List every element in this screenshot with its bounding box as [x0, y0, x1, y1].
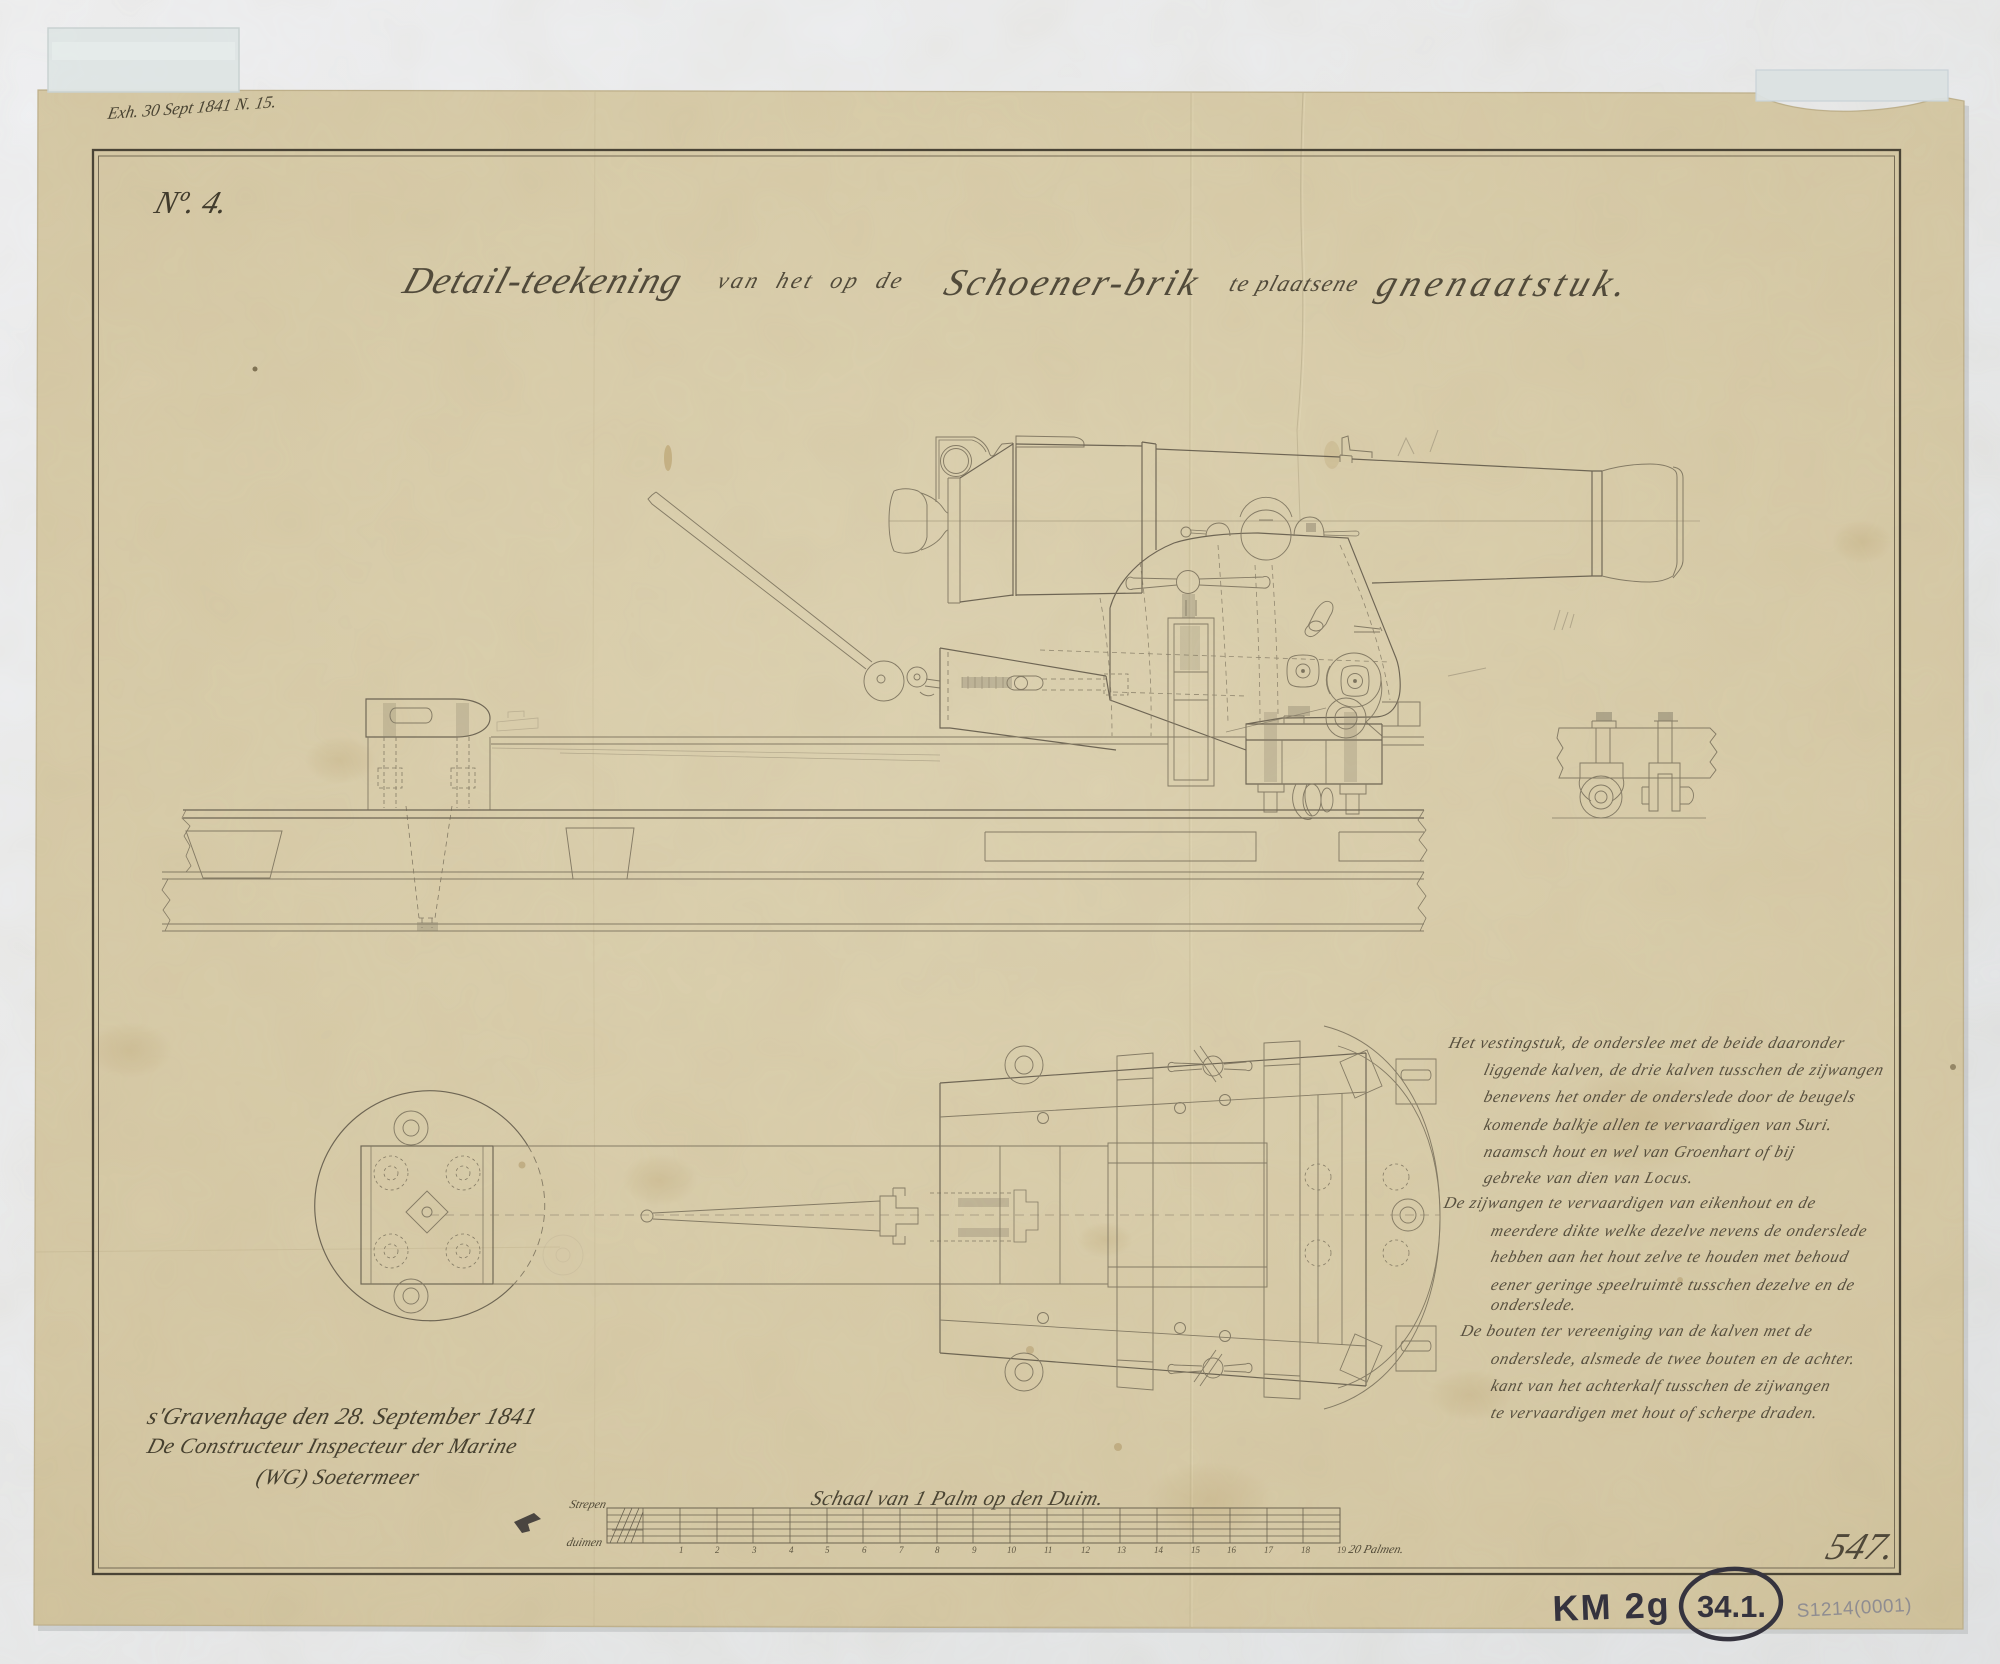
svg-text:34.1.: 34.1.	[1697, 1589, 1766, 1624]
svg-text:te vervaardigen met hout of sc: te vervaardigen met hout of scherpe drad…	[1489, 1403, 1820, 1422]
svg-text:16: 16	[1227, 1545, 1237, 1555]
svg-text:duimen: duimen	[565, 1535, 604, 1549]
svg-text:7: 7	[899, 1545, 904, 1555]
svg-text:9: 9	[972, 1545, 977, 1555]
svg-text:s'Gravenhage den 28. September: s'Gravenhage den 28. September 1841	[144, 1403, 540, 1429]
svg-text:10: 10	[1007, 1545, 1017, 1555]
svg-text:12: 12	[1081, 1545, 1091, 1555]
svg-text:Strepen: Strepen	[568, 1497, 608, 1511]
svg-text:Detail-teekening: Detail-teekening	[397, 260, 689, 302]
svg-text:1: 1	[679, 1545, 684, 1555]
svg-text:van het op de: van het op de	[714, 269, 908, 294]
svg-text:onderslede.: onderslede.	[1489, 1295, 1579, 1314]
svg-text:8: 8	[935, 1545, 940, 1555]
svg-text:11: 11	[1044, 1545, 1052, 1555]
svg-text:benevens het onder de ondersle: benevens het onder de onderslede door de…	[1482, 1087, 1858, 1106]
svg-text:naamsch hout en wel van Groenh: naamsch hout en wel van Groenhart of bij	[1482, 1142, 1797, 1161]
svg-text:liggende kalven, de drie kalve: liggende kalven, de drie kalven tusschen…	[1482, 1060, 1886, 1079]
svg-text:14: 14	[1154, 1545, 1164, 1555]
svg-text:6: 6	[862, 1545, 867, 1555]
svg-text:20 Palmen.: 20 Palmen.	[1347, 1542, 1405, 1556]
svg-text:De zijwangen te vervaardigen v: De zijwangen te vervaardigen van eikenho…	[1441, 1193, 1818, 1212]
svg-text:Schoener-brik: Schoener-brik	[939, 262, 1206, 304]
svg-text:4: 4	[789, 1545, 794, 1555]
svg-text:Nº. 4.: Nº. 4.	[150, 186, 232, 221]
svg-text:KM 2g: KM 2g	[1552, 1584, 1671, 1629]
svg-text:De bouten ter vereeniging van: De bouten ter vereeniging van de kalven …	[1458, 1321, 1815, 1340]
svg-text:onderslede, alsmede de twee bo: onderslede, alsmede de twee bouten en de…	[1489, 1349, 1858, 1368]
svg-text:Schaal van 1 Palm op den Duim.: Schaal van 1 Palm op den Duim.	[809, 1486, 1107, 1510]
svg-text:Het vestingstuk, de onderslee: Het vestingstuk, de onderslee met de bei…	[1446, 1033, 1847, 1052]
svg-text:547.: 547.	[1821, 1526, 1901, 1568]
svg-text:19: 19	[1337, 1545, 1347, 1555]
svg-text:17: 17	[1264, 1545, 1274, 1555]
svg-text:2: 2	[715, 1545, 720, 1555]
svg-text:hebben aan het hout zelve te h: hebben aan het hout zelve te houden met …	[1489, 1247, 1851, 1266]
svg-text:te plaatsene: te plaatsene	[1226, 272, 1363, 297]
svg-text:3: 3	[751, 1545, 757, 1555]
svg-text:15: 15	[1191, 1545, 1201, 1555]
svg-text:kant van het achterkalf tussch: kant van het achterkalf tusschen de zijw…	[1489, 1376, 1833, 1395]
svg-text:meerdere dikte welke dezelve n: meerdere dikte welke dezelve nevens de o…	[1489, 1221, 1870, 1240]
svg-text:gebreke van dien van Locus.: gebreke van dien van Locus.	[1482, 1168, 1696, 1187]
svg-text:gnenaatstuk.: gnenaatstuk.	[1371, 263, 1638, 305]
svg-text:komende balkje allen te vervaa: komende balkje allen te vervaardigen van…	[1482, 1115, 1835, 1134]
svg-text:(WG) Soetermeer: (WG) Soetermeer	[254, 1464, 423, 1489]
svg-text:eener geringe speelruimte tuss: eener geringe speelruimte tusschen dezel…	[1489, 1275, 1857, 1294]
svg-text:5: 5	[825, 1545, 830, 1555]
svg-text:De Constructeur Inspecteur der: De Constructeur Inspecteur der Marine	[144, 1433, 521, 1458]
svg-text:13: 13	[1117, 1545, 1127, 1555]
svg-text:18: 18	[1301, 1545, 1311, 1555]
